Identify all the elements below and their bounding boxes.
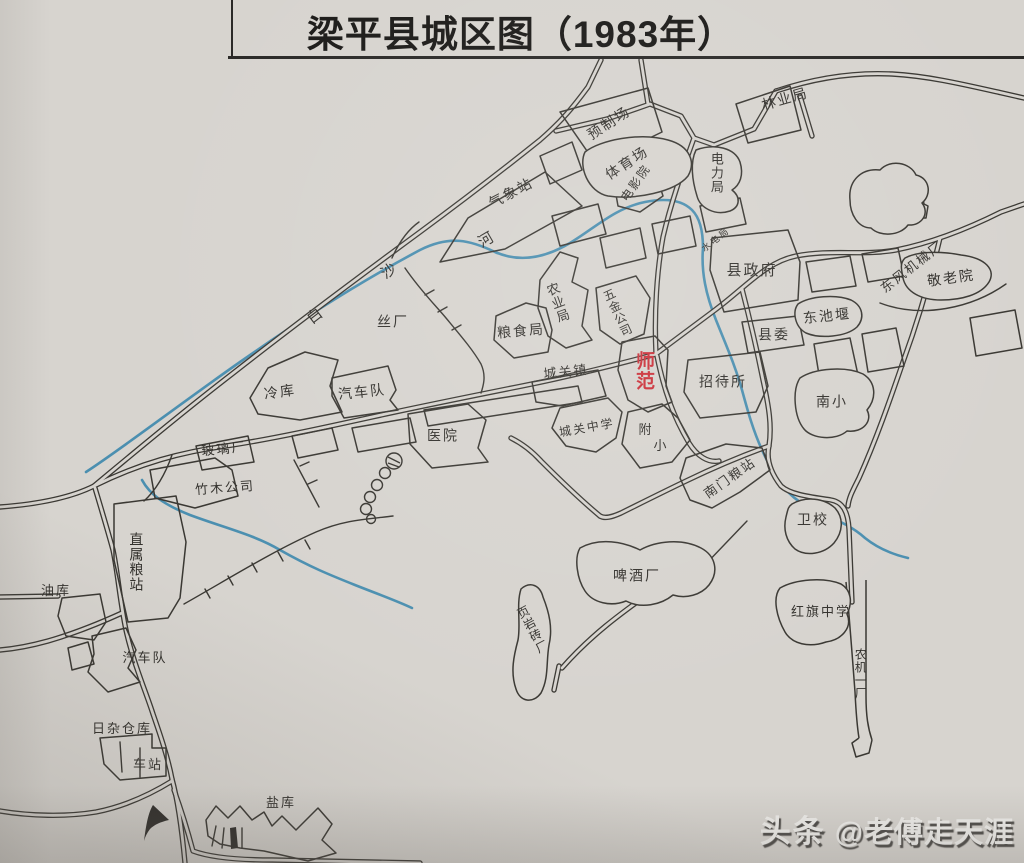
map-label-bus-station: 车站 [133,758,163,772]
map-title: 梁平县城区图（1983年） [238,4,804,58]
map-label-hardware-company: 五金公司 [600,287,633,339]
map-label-health-school: 卫校 [797,513,829,528]
map-label-hospital: 医院 [427,429,459,444]
watermark-author-handle: @老傅走天涯 [835,809,1014,851]
map-label-south-gate-grain-station: 南门粮站 [702,455,759,501]
map-label-dongchi-pond: 东池堰 [802,306,851,326]
map-label-layer: 气象站预制场体育场电影院林业局电力局水电局县政府东风机械厂敬老院东池堰县委丝厂粮… [0,0,1024,863]
map-label-chengguan-middle-school: 城关中学 [558,417,615,439]
map-label-normal-school: 师范 [633,351,653,391]
map-label-salt-depot: 盐库 [266,796,296,810]
title-underline [228,56,1024,59]
map-label-county-committee: 县委 [758,328,790,343]
map-label-motor-fleet-south: 汽车队 [122,651,167,665]
map-label-direct-grain-station: 直属粮站 [129,532,144,592]
map-label-sundries-warehouse: 日杂仓库 [92,722,152,736]
map-label-river-char-bai: 白 [304,305,327,328]
map-label-attached-primary-char1: 附 [638,423,653,437]
map-label-bamboo-timber-company: 竹木公司 [195,479,256,497]
map-label-chengguan-town: 城关镇 [543,363,589,381]
map-label-power-bureau: 电力局 [709,152,723,194]
map-label-attached-primary-char2: 小 [653,439,668,453]
map-label-silk-factory: 丝厂 [377,315,409,330]
map-label-forestry-bureau: 林业局 [760,85,810,112]
map-label-river-char-sha: 沙 [379,260,402,283]
watermark-brand-toutiao: 头条 [760,806,826,851]
map-label-precast-yard: 预制场 [585,104,633,142]
map-label-motor-fleet-north: 汽车队 [337,382,386,402]
map-label-south-primary-school: 南小 [816,395,848,410]
map-label-grain-bureau: 粮食局 [496,322,545,341]
map-label-agriculture-bureau: 农业局 [543,281,570,325]
watermark: 头条 @老傅走天涯 [760,806,1014,851]
map-label-glass-factory: 玻璃厂 [201,440,247,458]
title-left-frame-line [231,0,233,56]
map-label-shale-brick-factory: 页岩砖厂 [514,604,550,656]
map-label-hongqi-middle-school: 红旗中学 [791,605,851,619]
map-label-oil-depot: 油库 [41,584,71,598]
map-label-river-char-he: 河 [476,229,499,251]
map-label-agri-machinery-plant: 农机一厂 [854,648,867,700]
map-label-cold-storage: 冷库 [263,383,297,402]
map-label-guesthouse: 招待所 [699,375,747,390]
map-label-brewery: 啤酒厂 [613,569,661,584]
map-photo: 气象站预制场体育场电影院林业局电力局水电局县政府东风机械厂敬老院东池堰县委丝厂粮… [0,0,1024,863]
map-label-weather-station: 气象站 [486,175,535,211]
map-label-nursing-home: 敬老院 [926,267,976,288]
map-label-county-government: 县政府 [726,263,777,279]
map-label-hydropower-bureau: 水电局 [700,226,732,254]
